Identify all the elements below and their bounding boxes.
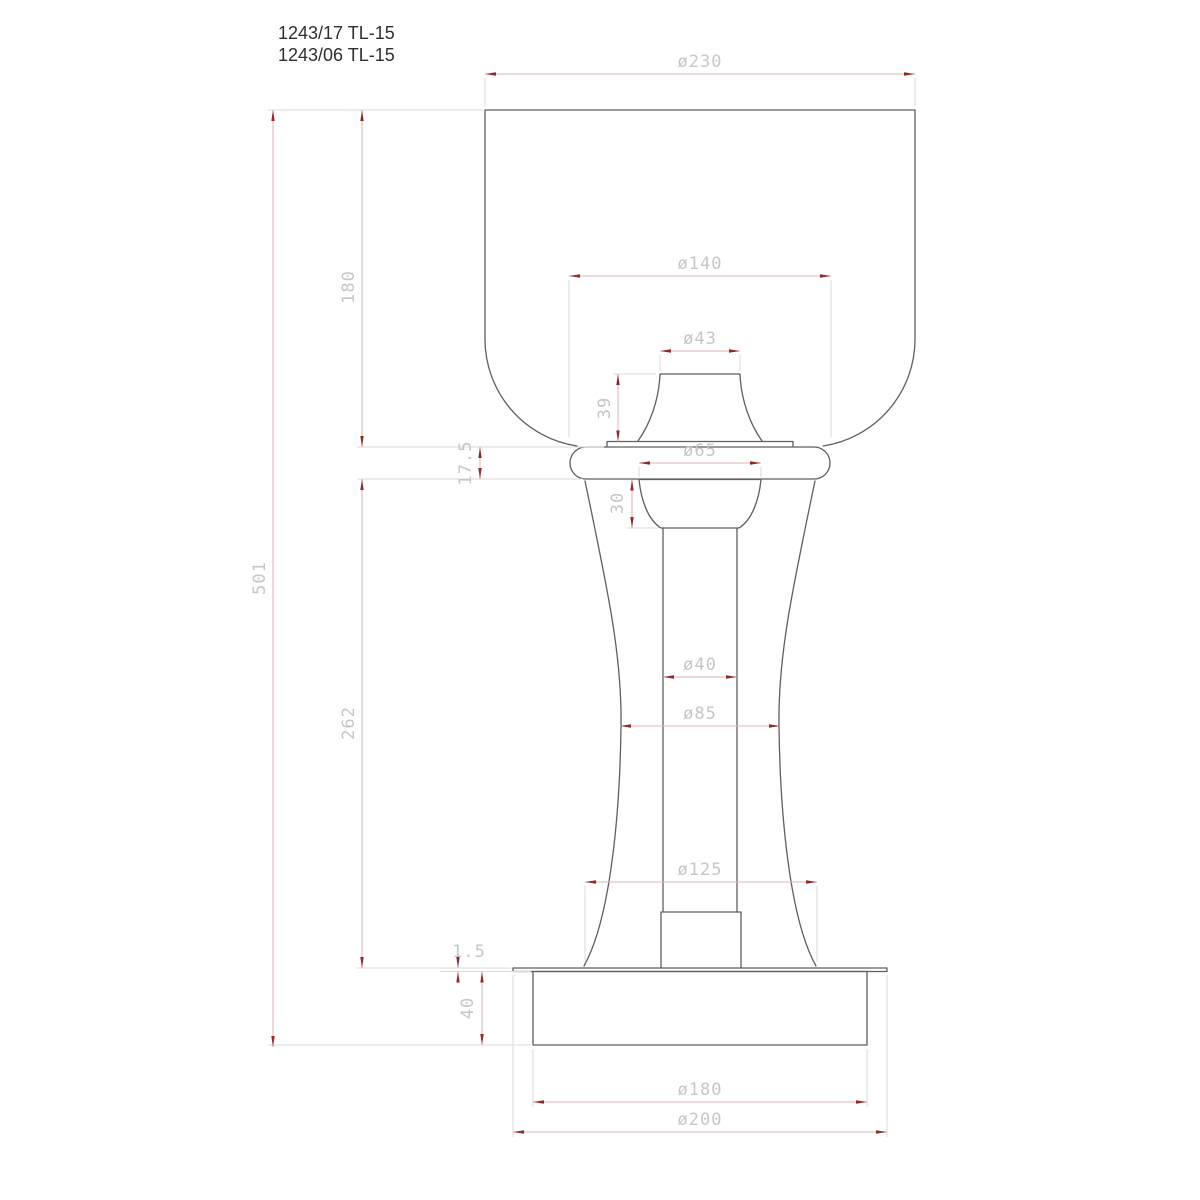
shade-outline bbox=[485, 110, 915, 446]
dim-label-shade-height: 180 bbox=[339, 270, 359, 304]
dim-label-base-diameter: ø180 bbox=[678, 1080, 723, 1100]
dim-label-shade-opening-diameter: ø140 bbox=[678, 254, 723, 274]
capital-outline bbox=[639, 480, 761, 529]
lamp-outline bbox=[485, 110, 915, 1045]
dim-label-waist-diameter: ø85 bbox=[683, 704, 717, 724]
dim-label-socket-height: 39 bbox=[595, 397, 615, 419]
base-box-outline bbox=[533, 972, 867, 1046]
model-number-1: 1243/17 TL-15 bbox=[278, 23, 395, 43]
dim-label-base-height: 40 bbox=[458, 997, 478, 1019]
dim-label-capital-height: 30 bbox=[608, 492, 628, 514]
lamp-technical-drawing: 1243/17 TL-15 1243/06 TL-15 bbox=[0, 0, 1200, 1200]
dim-label-shade-outer-diameter: ø230 bbox=[678, 52, 723, 72]
dim-label-base-plate-diameter: ø200 bbox=[678, 1110, 723, 1130]
dim-label-collar-height: 17.5 bbox=[456, 441, 476, 486]
socket-outline bbox=[638, 374, 762, 441]
dim-label-column-height: 262 bbox=[339, 706, 359, 740]
technical-drawing-page: 1243/17 TL-15 1243/06 TL-15 bbox=[0, 0, 1200, 1200]
title-block: 1243/17 TL-15 1243/06 TL-15 bbox=[278, 23, 395, 65]
plinth-outline bbox=[661, 912, 741, 968]
extension-lines bbox=[268, 78, 915, 1137]
dimension-lines bbox=[273, 74, 915, 1132]
dim-label-overall-height: 501 bbox=[250, 561, 270, 595]
dim-label-stem-diameter: ø40 bbox=[683, 655, 717, 675]
model-number-2: 1243/06 TL-15 bbox=[278, 45, 395, 65]
dim-label-base-plate-thickness: 1.5 bbox=[452, 942, 486, 962]
dim-label-neck-diameter: ø65 bbox=[683, 441, 717, 461]
dim-label-foot-diameter: ø125 bbox=[678, 860, 723, 880]
dim-label-socket-diameter: ø43 bbox=[683, 329, 717, 349]
